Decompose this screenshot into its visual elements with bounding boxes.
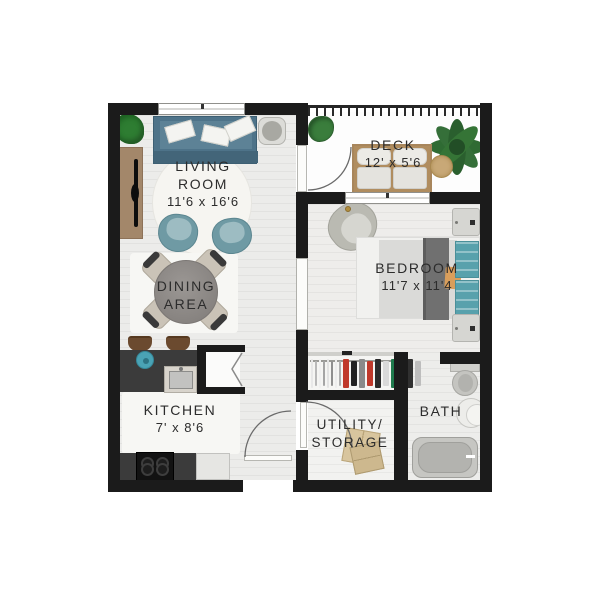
wall-bottom-left bbox=[108, 480, 243, 492]
burner bbox=[141, 463, 154, 476]
entry-door-panel bbox=[244, 455, 292, 461]
round-pouf bbox=[430, 155, 453, 178]
teal-bowl bbox=[136, 351, 154, 369]
clothes-item bbox=[311, 359, 313, 388]
floor-lamp-dot bbox=[345, 206, 351, 212]
room-name: LIVING bbox=[167, 157, 239, 175]
utility-door-panel bbox=[300, 402, 307, 448]
room-name: ROOM bbox=[167, 175, 239, 193]
wall-bath-left bbox=[394, 352, 408, 480]
burner bbox=[156, 463, 169, 476]
kitchen-sink bbox=[164, 366, 197, 393]
nightstand-dot bbox=[455, 221, 458, 224]
kitchen-closet-wall-bottom bbox=[197, 387, 245, 394]
bedroom-door-panel bbox=[296, 258, 308, 330]
nightstand-top bbox=[452, 208, 480, 236]
window-mullion bbox=[201, 104, 204, 109]
clothes-item bbox=[415, 361, 421, 386]
wall-bath-top bbox=[440, 352, 492, 364]
bathtub bbox=[412, 437, 478, 478]
deck-label: DECK 12' x 5'6 bbox=[365, 136, 422, 172]
toilet-bowl bbox=[452, 370, 478, 396]
wall-center-bottom bbox=[296, 450, 308, 480]
room-dimensions: 7' x 8'6 bbox=[144, 419, 217, 437]
media-console bbox=[119, 147, 143, 239]
sink-faucet bbox=[179, 367, 183, 371]
clothes-item bbox=[319, 359, 321, 388]
kitchen-closet-floor bbox=[206, 352, 240, 387]
nightstand-knob bbox=[470, 326, 475, 331]
tv-center bbox=[131, 184, 139, 202]
bathtub-faucet bbox=[466, 455, 475, 458]
cooktop bbox=[136, 452, 174, 481]
chair-cushion bbox=[165, 216, 193, 241]
room-name: KITCHEN bbox=[144, 401, 217, 419]
utility-storage-label: UTILITY/ STORAGE bbox=[312, 416, 389, 452]
clothes-item bbox=[315, 361, 317, 386]
room-name: BEDROOM bbox=[375, 259, 459, 277]
toilet-bowl-inner bbox=[458, 374, 473, 392]
deck-door-panel bbox=[297, 145, 307, 192]
room-name: AREA bbox=[157, 295, 216, 313]
clothes-item bbox=[343, 359, 349, 388]
refrigerator bbox=[196, 453, 230, 480]
kitchen-label: KITCHEN 7' x 8'6 bbox=[144, 401, 217, 437]
nightstand-dot bbox=[455, 327, 458, 330]
living-window bbox=[158, 103, 245, 115]
living-room-label: LIVING ROOM 11'6 x 16'6 bbox=[167, 157, 239, 211]
clothes-item bbox=[359, 359, 365, 388]
room-name: DECK bbox=[365, 136, 422, 154]
room-name: DINING bbox=[157, 277, 216, 295]
side-stool bbox=[258, 117, 286, 145]
bathtub-inner bbox=[418, 442, 472, 473]
clothes-item bbox=[339, 361, 341, 386]
plant-center bbox=[449, 139, 465, 155]
room-dimensions: 11'6 x 16'6 bbox=[167, 193, 239, 211]
wall-bottom-right bbox=[293, 480, 492, 492]
sink-basin bbox=[169, 371, 193, 389]
wall-left bbox=[108, 103, 120, 492]
room-name: BATH bbox=[420, 402, 463, 420]
nightstand-bottom bbox=[452, 314, 480, 342]
nightstand-knob bbox=[470, 220, 475, 225]
bar-stool bbox=[166, 336, 190, 351]
teal-bowl-center bbox=[143, 358, 149, 364]
clothes-item bbox=[375, 359, 381, 388]
dining-area-label: DINING AREA bbox=[157, 277, 216, 313]
floor-plan-canvas: LIVING ROOM 11'6 x 16'6 DINING AREA KITC… bbox=[0, 0, 600, 600]
bedroom-deck-window bbox=[345, 192, 430, 204]
bath-label: BATH bbox=[420, 402, 463, 420]
deck-railing bbox=[308, 105, 480, 116]
clothes-item bbox=[331, 361, 333, 386]
chair-cushion bbox=[218, 221, 245, 245]
wall-right bbox=[480, 103, 492, 492]
window-mullion bbox=[386, 193, 389, 198]
closet-clothes bbox=[311, 358, 391, 388]
side-stool-seat bbox=[262, 121, 282, 141]
closet-front-tick bbox=[342, 351, 352, 355]
wall-center-upper bbox=[296, 103, 308, 145]
clothes-item bbox=[383, 361, 389, 386]
clothes-item bbox=[367, 361, 373, 386]
clothes-item bbox=[327, 359, 329, 388]
clothes-item bbox=[335, 359, 337, 388]
room-name: UTILITY/ bbox=[312, 416, 389, 434]
room-dimensions: 12' x 5'6 bbox=[365, 154, 422, 172]
bar-stool bbox=[128, 336, 152, 351]
room-name: STORAGE bbox=[312, 434, 389, 452]
bedroom-label: BEDROOM 11'7 x 11'4 bbox=[375, 259, 459, 295]
clothes-item bbox=[351, 361, 357, 386]
clothes-item bbox=[323, 361, 325, 386]
room-dimensions: 11'7 x 11'4 bbox=[375, 277, 459, 295]
wall-closet-bottom bbox=[296, 390, 408, 400]
